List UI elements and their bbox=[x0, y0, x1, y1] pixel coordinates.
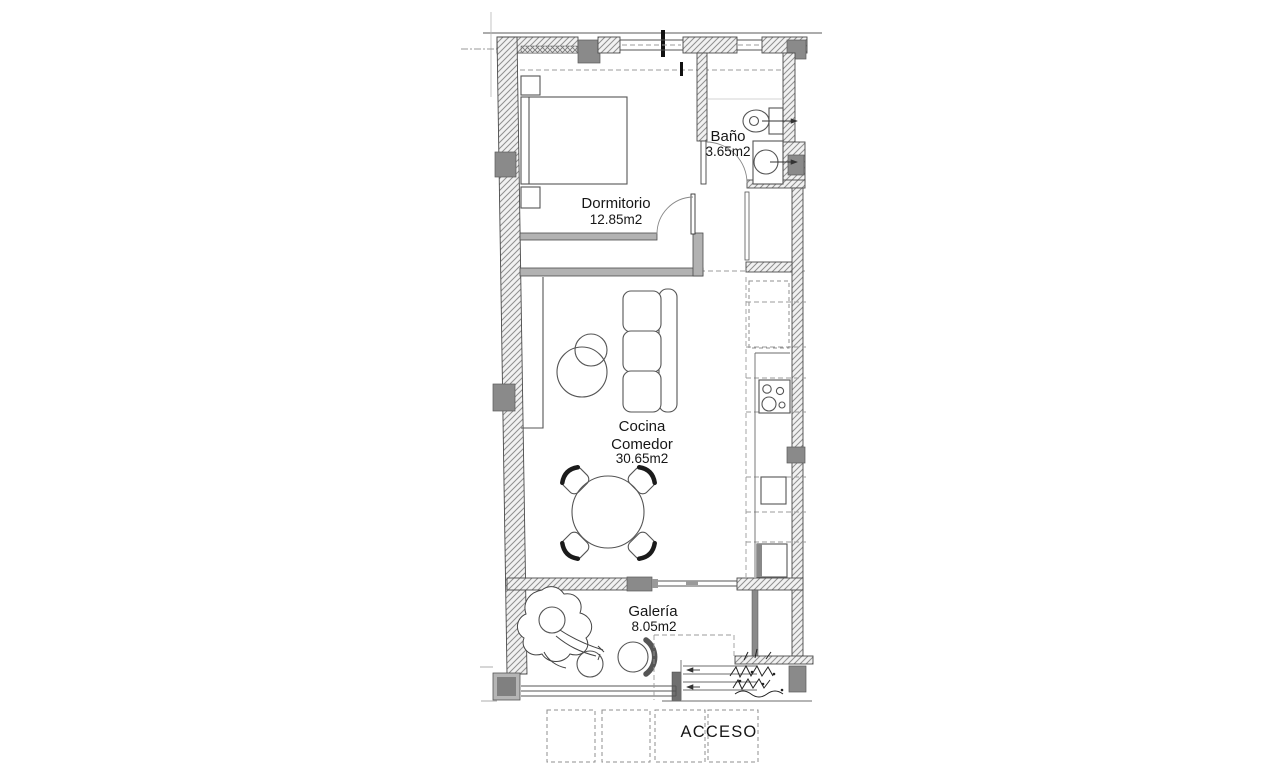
room-area-dormitorio: 12.85m2 bbox=[590, 212, 643, 227]
room-label-bano: Baño bbox=[710, 128, 745, 145]
living-galeria-wall bbox=[507, 578, 628, 590]
galeria bbox=[517, 587, 734, 700]
room-label-dormitorio: Dormitorio bbox=[581, 195, 650, 212]
pillar bbox=[493, 384, 515, 411]
sofa-back bbox=[659, 289, 677, 412]
kitchen-corridor-wall bbox=[746, 262, 792, 272]
bedroom-living-wall bbox=[520, 268, 703, 276]
paving-square bbox=[547, 710, 595, 762]
bed bbox=[521, 97, 627, 184]
dining-chair bbox=[626, 464, 659, 497]
plant-icon bbox=[517, 587, 604, 668]
pillar bbox=[789, 666, 806, 692]
porch-side-wall bbox=[752, 590, 758, 657]
duct-shaft bbox=[745, 192, 749, 260]
pillar bbox=[787, 447, 805, 463]
room-labels: Dormitorio 12.85m2 Baño 3.65m2 Cocina Co… bbox=[581, 128, 757, 741]
armchair-icon bbox=[557, 347, 607, 397]
armchair-cushion bbox=[575, 334, 607, 366]
dining-table-icon bbox=[572, 476, 644, 548]
kitchen-cabinet-edge bbox=[757, 544, 762, 577]
closet-line bbox=[521, 277, 543, 428]
round-chair-icon bbox=[618, 642, 648, 672]
room-area-cocina-comedor: 30.65m2 bbox=[616, 451, 669, 466]
nightstand bbox=[521, 76, 540, 95]
pillar bbox=[578, 40, 600, 63]
bathroom-left-wall bbox=[697, 53, 707, 141]
dining-chair bbox=[626, 530, 659, 563]
living-galeria-wall bbox=[737, 578, 803, 590]
sofa-cushion bbox=[623, 291, 661, 332]
pillar bbox=[495, 152, 516, 177]
dining-chair bbox=[559, 530, 592, 563]
porch-bottom-wall bbox=[735, 656, 813, 664]
paving-square bbox=[602, 710, 650, 762]
room-label-cocina: Cocina bbox=[619, 418, 666, 435]
axis-tick bbox=[661, 30, 665, 57]
pillar bbox=[788, 155, 804, 175]
entrance bbox=[547, 649, 812, 762]
door-jamb-wall bbox=[693, 233, 703, 276]
nightstand bbox=[521, 187, 540, 208]
window-top-2 bbox=[737, 40, 762, 50]
sliding-door bbox=[652, 579, 737, 588]
fridge-dashed-outline bbox=[749, 281, 789, 348]
axis-tick bbox=[680, 62, 683, 76]
sofa-cushion bbox=[623, 331, 661, 372]
window-box-strip bbox=[521, 46, 577, 53]
side-table-icon bbox=[577, 651, 603, 677]
room-area-galeria: 8.05m2 bbox=[631, 619, 676, 634]
wardrobe-front-wall bbox=[520, 233, 657, 240]
corner-pillar-core bbox=[497, 677, 516, 696]
floor-plan: Dormitorio 12.85m2 Baño 3.65m2 Cocina Co… bbox=[0, 0, 1280, 768]
top-wall-segment bbox=[683, 37, 737, 53]
room-label-galeria: Galería bbox=[628, 603, 678, 620]
window-top-1 bbox=[620, 40, 683, 50]
pillar bbox=[627, 577, 652, 591]
sofa-cushion bbox=[623, 371, 661, 412]
room-area-bano: 3.65m2 bbox=[705, 144, 750, 159]
galeria-window bbox=[521, 686, 676, 696]
bathroom bbox=[701, 99, 797, 260]
bedroom-door-arc bbox=[657, 197, 693, 234]
entrance-label: ACCESO bbox=[681, 723, 758, 741]
bedroom-door-leaf bbox=[691, 194, 695, 234]
round-chair-back bbox=[646, 640, 655, 674]
top-wall-segment bbox=[598, 37, 620, 53]
bathroom-right-wall bbox=[783, 53, 795, 142]
dining-chair bbox=[559, 464, 592, 497]
kitchen-sink-icon bbox=[761, 477, 786, 504]
